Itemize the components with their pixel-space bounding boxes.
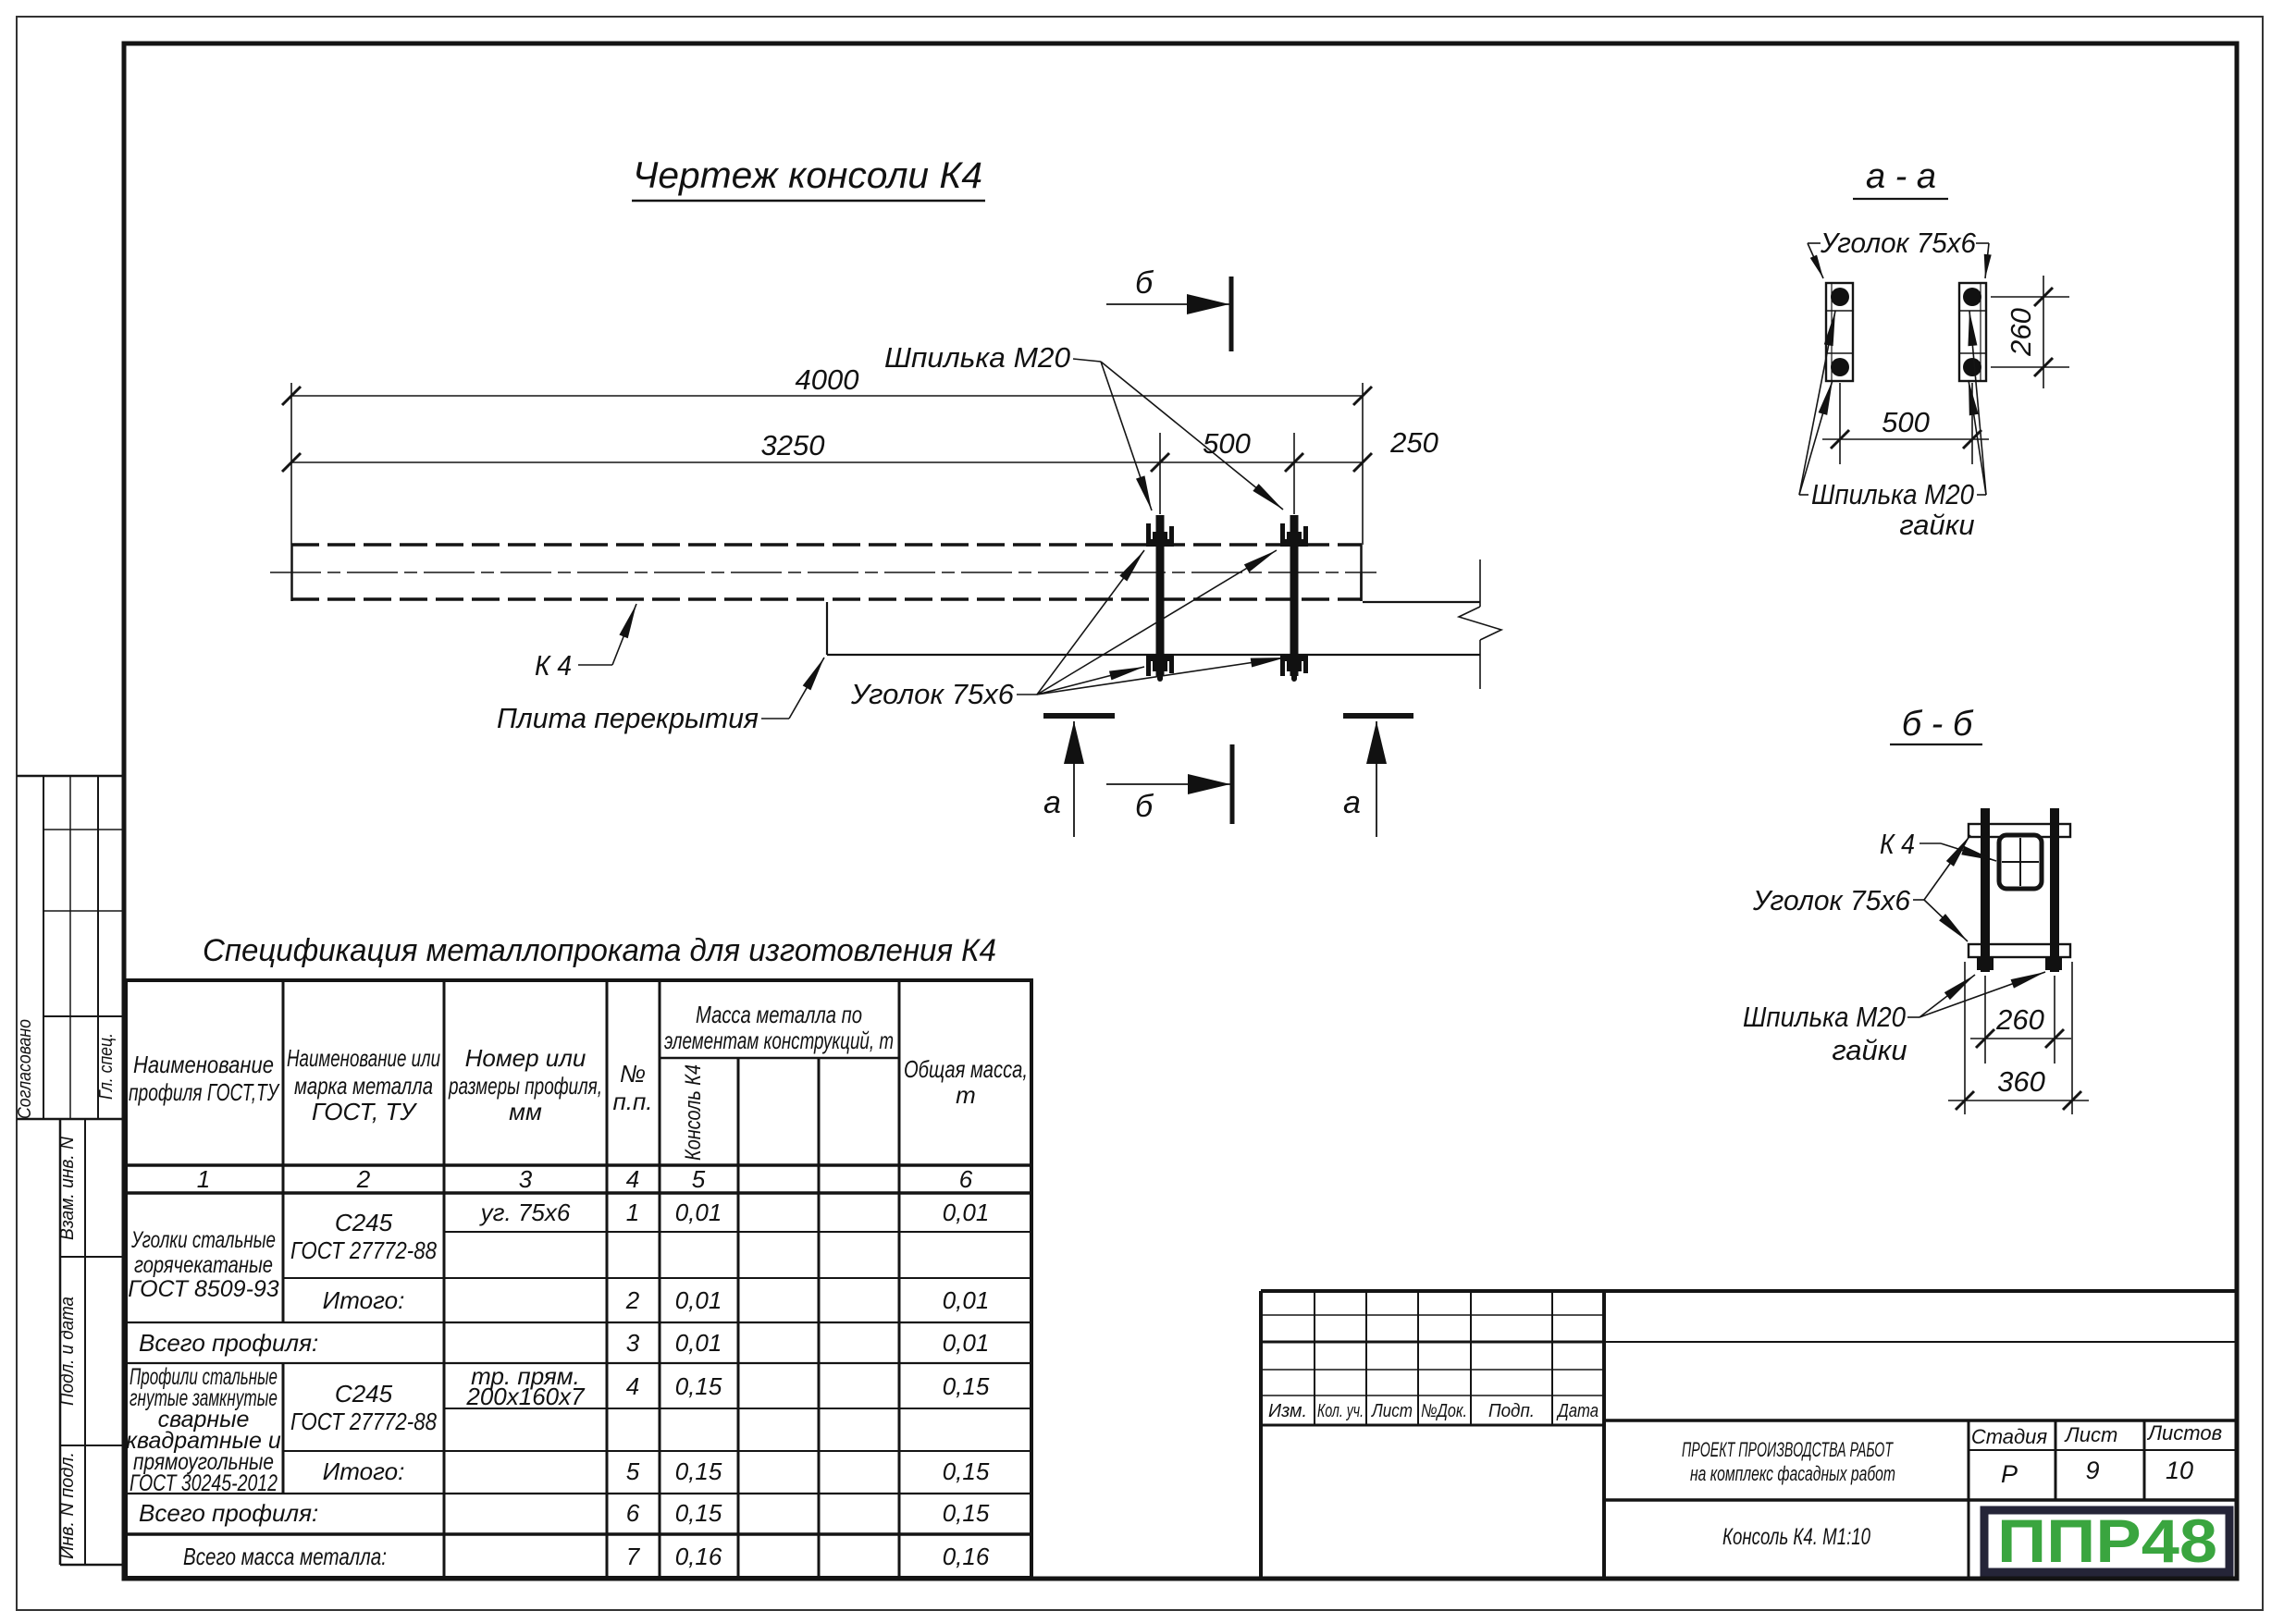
svg-text:Уголок 75х6: Уголок 75х6: [1752, 884, 1911, 916]
svg-text:0,16: 0,16: [675, 1543, 722, 1570]
svg-text:Гл. спец.: Гл. спец.: [96, 1033, 117, 1100]
svg-text:0,01: 0,01: [675, 1199, 722, 1226]
svg-text:марка металла: марка металла: [294, 1072, 433, 1100]
svg-text:Номер или: Номер или: [465, 1044, 586, 1072]
svg-text:Шпилька М20: Шпилька М20: [884, 341, 1070, 374]
svg-text:500: 500: [1203, 427, 1251, 460]
svg-text:Уголок 75х6: Уголок 75х6: [850, 678, 1015, 710]
svg-text:а: а: [1343, 785, 1361, 820]
svg-text:б - б: б - б: [1902, 705, 1974, 744]
svg-text:горячекатаные: горячекатаные: [134, 1252, 273, 1278]
svg-text:Взам. инв. N: Взам. инв. N: [57, 1136, 78, 1240]
svg-text:профиля ГОСТ,ТУ: профиля ГОСТ,ТУ: [129, 1078, 280, 1106]
svg-text:Лист: Лист: [2064, 1423, 2118, 1446]
svg-text:0,15: 0,15: [943, 1457, 990, 1485]
svg-text:Листов: Листов: [2146, 1421, 2222, 1445]
svg-text:№: №: [620, 1060, 646, 1088]
svg-text:Шпилька М20: Шпилька М20: [1743, 1001, 1906, 1033]
svg-text:260: 260: [1995, 1003, 2044, 1036]
svg-text:0,15: 0,15: [675, 1372, 722, 1400]
svg-text:мм: мм: [509, 1098, 542, 1125]
svg-text:5: 5: [692, 1165, 706, 1193]
svg-text:С245: С245: [335, 1380, 393, 1408]
svg-text:0,01: 0,01: [943, 1286, 990, 1314]
svg-text:Общая масса,: Общая масса,: [904, 1055, 1028, 1083]
svg-text:5: 5: [626, 1457, 640, 1485]
svg-text:Итого:: Итого:: [323, 1457, 405, 1485]
svg-text:Плита перекрытия: Плита перекрытия: [497, 702, 759, 734]
svg-text:ГОСТ 27772-88: ГОСТ 27772-88: [290, 1408, 437, 1435]
svg-text:0,15: 0,15: [943, 1372, 990, 1400]
svg-text:Уголок 75х6: Уголок 75х6: [1820, 227, 1977, 259]
svg-text:0,15: 0,15: [675, 1457, 722, 1485]
svg-text:250: 250: [1389, 426, 1438, 459]
svg-text:Р: Р: [2001, 1460, 2018, 1488]
svg-text:2: 2: [625, 1286, 640, 1314]
svg-text:а: а: [1043, 785, 1061, 820]
svg-text:Всего профиля:: Всего профиля:: [139, 1329, 318, 1357]
svg-text:0,16: 0,16: [943, 1543, 990, 1570]
svg-text:Согласовано: Согласовано: [15, 1019, 35, 1119]
svg-text:0,01: 0,01: [675, 1329, 722, 1357]
svg-text:ГОСТ, ТУ: ГОСТ, ТУ: [312, 1098, 417, 1125]
svg-text:Изм.: Изм.: [1268, 1401, 1307, 1421]
svg-text:ГОСТ 8509-93: ГОСТ 8509-93: [128, 1276, 278, 1302]
svg-text:7: 7: [626, 1543, 641, 1570]
svg-text:Всего профиля:: Всего профиля:: [139, 1499, 318, 1527]
svg-text:4000: 4000: [796, 363, 859, 396]
svg-text:6: 6: [626, 1499, 640, 1527]
svg-text:Подп.: Подп.: [1488, 1401, 1535, 1421]
svg-text:т: т: [956, 1081, 976, 1109]
svg-text:Лист: Лист: [1370, 1401, 1413, 1421]
svg-text:ПРОЕКТ ПРОИЗВОДСТВА РАБОТ: ПРОЕКТ ПРОИЗВОДСТВА РАБОТ: [1682, 1438, 1894, 1461]
svg-text:К 4: К 4: [1880, 828, 1915, 860]
svg-text:6: 6: [959, 1165, 973, 1193]
svg-text:4: 4: [626, 1372, 639, 1400]
svg-text:0,15: 0,15: [675, 1499, 722, 1527]
svg-text:гайки: гайки: [1899, 509, 1974, 541]
svg-text:б: б: [1135, 265, 1154, 301]
svg-text:Спецификация металлопроката дл: Спецификация металлопроката для изготовл…: [203, 933, 996, 968]
svg-text:9: 9: [2085, 1457, 2099, 1484]
svg-text:Дата: Дата: [1556, 1401, 1599, 1421]
svg-text:1: 1: [626, 1199, 639, 1226]
svg-text:3: 3: [626, 1329, 640, 1357]
svg-text:Консоль К4. М1:10: Консоль К4. М1:10: [1722, 1524, 1870, 1550]
svg-text:0,15: 0,15: [943, 1499, 990, 1527]
svg-text:Уголки стальные: Уголки стальные: [130, 1227, 276, 1253]
svg-text:Всего масса металла:: Всего масса металла:: [183, 1543, 387, 1570]
svg-text:элементам конструкций, т: элементам конструкций, т: [664, 1027, 894, 1054]
svg-text:К 4: К 4: [535, 649, 572, 682]
svg-text:а - а: а - а: [1866, 157, 1936, 196]
svg-text:б: б: [1135, 789, 1154, 824]
svg-text:260: 260: [2005, 308, 2037, 357]
svg-text:500: 500: [1882, 406, 1930, 438]
svg-text:Шпилька М20: Шпилька М20: [1811, 478, 1974, 510]
svg-text:2: 2: [356, 1165, 371, 1193]
svg-text:п.п.: п.п.: [612, 1088, 652, 1115]
svg-text:№Док.: №Док.: [1421, 1401, 1467, 1421]
svg-text:3250: 3250: [761, 429, 825, 461]
svg-text:0,01: 0,01: [943, 1199, 990, 1226]
svg-text:200х160х7: 200х160х7: [465, 1383, 586, 1410]
svg-text:0,01: 0,01: [943, 1329, 990, 1357]
svg-text:360: 360: [1997, 1065, 2045, 1098]
svg-text:Стадия: Стадия: [1971, 1425, 2048, 1448]
svg-text:Наименование или: Наименование или: [287, 1044, 440, 1072]
svg-text:гайки: гайки: [1832, 1034, 1907, 1066]
svg-text:Консоль К4: Консоль К4: [681, 1064, 706, 1161]
svg-text:4: 4: [626, 1165, 639, 1193]
svg-text:уг. 75х6: уг. 75х6: [479, 1199, 571, 1226]
svg-text:1: 1: [197, 1165, 210, 1193]
svg-text:ППР48: ППР48: [1997, 1506, 2217, 1575]
svg-text:Подл. и дата: Подл. и дата: [57, 1297, 78, 1406]
svg-text:Кол. уч.: Кол. уч.: [1317, 1401, 1364, 1421]
svg-text:С245: С245: [335, 1209, 393, 1236]
svg-text:0,01: 0,01: [675, 1286, 722, 1314]
svg-text:3: 3: [519, 1165, 533, 1193]
svg-text:Чертеж консоли К4: Чертеж консоли К4: [633, 155, 982, 196]
svg-text:10: 10: [2166, 1457, 2193, 1484]
svg-text:размеры профиля,: размеры профиля,: [448, 1072, 602, 1100]
svg-text:Масса металла по: Масса металла по: [696, 1001, 862, 1028]
svg-text:ГОСТ 30245-2012: ГОСТ 30245-2012: [130, 1470, 278, 1496]
svg-text:на комплекс фасадных работ: на комплекс фасадных работ: [1690, 1462, 1895, 1485]
svg-text:ГОСТ 27772-88: ГОСТ 27772-88: [290, 1236, 437, 1264]
svg-text:Наименование: Наименование: [133, 1051, 274, 1078]
svg-text:Итого:: Итого:: [323, 1286, 405, 1314]
svg-text:Инв. N подл.: Инв. N подл.: [57, 1452, 78, 1559]
